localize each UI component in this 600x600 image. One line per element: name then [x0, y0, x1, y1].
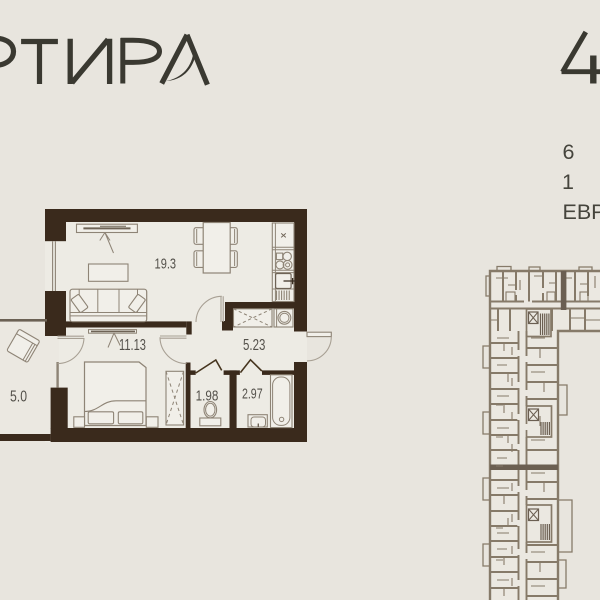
svg-text:5.23: 5.23 [243, 337, 265, 354]
svg-text:ЕВРО: ЕВРО [563, 200, 600, 224]
svg-text:1: 1 [562, 170, 574, 194]
svg-text:11.13: 11.13 [119, 337, 146, 354]
svg-text:6: 6 [563, 140, 575, 164]
svg-text:19.3: 19.3 [155, 256, 177, 272]
svg-text:1.98: 1.98 [196, 389, 219, 405]
svg-text:5.0: 5.0 [10, 388, 27, 405]
svg-text:2.97: 2.97 [242, 387, 263, 403]
